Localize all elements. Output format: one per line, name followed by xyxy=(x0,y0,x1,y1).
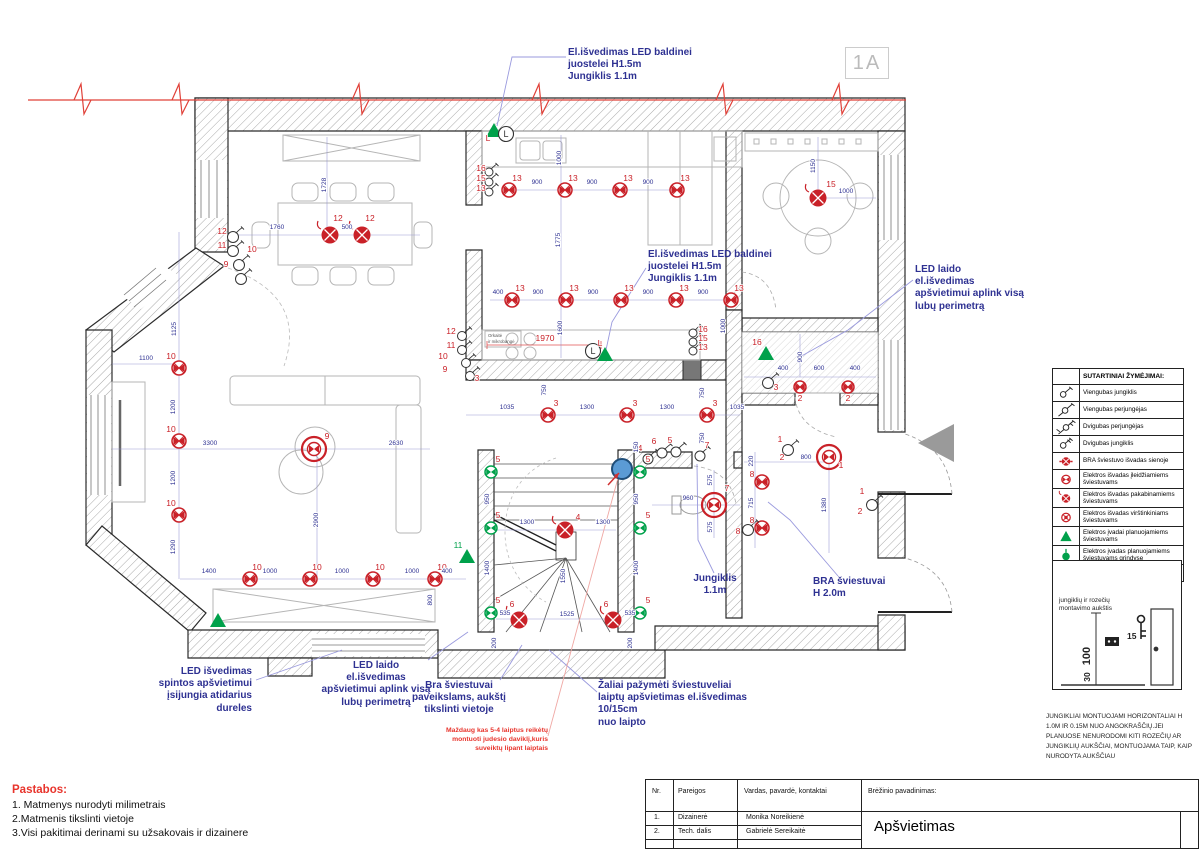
light-label: 13 xyxy=(698,342,708,352)
light-label: 12 xyxy=(365,213,375,223)
switch-symbol xyxy=(228,227,245,243)
recessed-light-symbol xyxy=(502,183,516,197)
notes-block: Pastabos: 1. Matmenys nurodyti milimetra… xyxy=(12,784,248,841)
light-label: 13 xyxy=(476,183,486,193)
pendant-light-symbol xyxy=(552,516,573,539)
dim: 1150 xyxy=(810,159,817,173)
pendant-light-symbol xyxy=(317,221,338,244)
sw1p-legend-icon xyxy=(1053,402,1080,418)
annotation-motion-note: Maždaug kas 5-4 laiptus reikėtų montuoti… xyxy=(418,726,548,754)
dim: 1100 xyxy=(139,355,153,362)
recessed-light-symbol xyxy=(620,408,634,422)
dim: 1000 xyxy=(556,150,563,165)
recessed-light-symbol xyxy=(670,183,684,197)
dim: 1300 xyxy=(660,404,675,411)
recessed-light-symbol xyxy=(541,408,555,422)
light-label: 5 xyxy=(496,454,501,464)
dim: 220 xyxy=(748,455,755,466)
light-label: 16 xyxy=(476,163,486,173)
svg-text:L: L xyxy=(503,129,508,139)
dim: 900 xyxy=(643,179,654,186)
stair-light-symbol xyxy=(485,466,497,478)
sw1-legend-icon xyxy=(1053,385,1080,401)
dim: 1760 xyxy=(270,224,285,231)
legend-item-label: Elektros išvadas pakabinamiems šviestuva… xyxy=(1080,489,1183,507)
dim: 900 xyxy=(587,179,598,186)
light-label: 2 xyxy=(858,506,863,516)
row-name: Monika Noreikienė xyxy=(746,814,804,821)
light-label: 10 xyxy=(375,562,385,572)
dim: 1000 xyxy=(405,568,420,575)
dim: 1400 xyxy=(484,560,491,575)
recessed-light-symbol xyxy=(505,293,519,307)
dim: 3300 xyxy=(203,440,218,447)
dim: 1125 xyxy=(171,322,178,336)
light-label: 13 xyxy=(512,173,522,183)
dim: 1200 xyxy=(170,399,177,414)
dim: 1300 xyxy=(580,404,595,411)
recessed-light-symbol xyxy=(172,508,186,522)
mount-diagram: 100 30 15 xyxy=(1053,561,1179,687)
legend-header-symbol-cell xyxy=(1053,369,1080,384)
note-item: 2.Matmenis tikslinti vietoje xyxy=(12,812,248,826)
annotation-led-closet: LED išvedimas spintos apšvietimui įsijun… xyxy=(100,666,252,715)
legend-item-label: Elektros išvadas įleidžiamiems šviestuva… xyxy=(1080,470,1183,488)
svg-text:Orkaitė: Orkaitė xyxy=(488,333,503,338)
legend-item: Viengubas jungiklis xyxy=(1053,385,1183,402)
switch-symbol xyxy=(783,440,800,456)
light-label: 5 xyxy=(668,435,673,445)
dim: 400 xyxy=(493,289,504,296)
dim: 2900 xyxy=(313,512,320,527)
dim: 150 xyxy=(633,441,640,452)
stair-light-symbol xyxy=(485,522,497,534)
svg-text:ir mikrobangė: ir mikrobangė xyxy=(488,339,515,344)
light-label: 10 xyxy=(247,244,257,254)
col-name: Vardas, pavardė, kontaktai xyxy=(744,788,827,795)
small-texts: Orkaitėir mikrobangė xyxy=(488,333,515,344)
key-icon xyxy=(1138,616,1147,640)
stair-light-symbol xyxy=(634,522,646,534)
legend-item: Elektros išvadas virštinkiniams šviestuv… xyxy=(1053,508,1183,527)
sw2p-legend-icon xyxy=(1053,419,1080,435)
light-label: 1 xyxy=(860,486,865,496)
dim: 1600 xyxy=(557,320,564,335)
legend-item: Dvigubas jungiklis xyxy=(1053,436,1183,453)
legend-item-label: Elektros išvadas virštinkiniams šviestuv… xyxy=(1080,508,1183,526)
light-label: 3 xyxy=(713,398,718,408)
light-label: 5 xyxy=(496,510,501,520)
drawing-title: Apšvietimas xyxy=(874,818,955,835)
door-icon xyxy=(1151,609,1173,685)
light-label: L xyxy=(598,338,603,348)
light-label: 11 xyxy=(218,240,227,250)
light-label: 4 xyxy=(576,512,581,522)
light-label: 3 xyxy=(774,382,779,392)
light-label: L xyxy=(486,133,491,143)
dim: 1550 xyxy=(560,568,567,583)
dim: 1290 xyxy=(170,539,177,554)
light-label: 9 xyxy=(443,364,448,374)
dim: 200 xyxy=(627,637,634,648)
dim: 2630 xyxy=(389,440,404,447)
row-nr: 2. xyxy=(654,828,660,835)
dim: 1775 xyxy=(555,232,562,247)
legend-item: BRA šviestuvo išvadas sienoje xyxy=(1053,453,1183,470)
light-label: 9 xyxy=(325,431,330,441)
light-label: 8 xyxy=(750,469,755,479)
annotation-led-strip-mid: El.išvedimas LED baldinei juostelei H1.5… xyxy=(648,249,818,286)
dim: 900 xyxy=(532,179,543,186)
stair-light-symbol xyxy=(634,466,646,478)
light-label: 10 xyxy=(252,562,262,572)
light-label: 9 xyxy=(224,259,229,269)
light-label: 10 xyxy=(166,351,176,361)
recessed-light-symbol xyxy=(669,293,683,307)
rec-legend-icon xyxy=(1053,470,1080,488)
mount-note: JUNGIKLIAI MONTUOJAMI HORIZONTALIAI H 1.… xyxy=(1046,712,1198,762)
light-label: 5 xyxy=(646,510,651,520)
dim: 900 xyxy=(643,289,654,296)
light-label: 5 xyxy=(646,595,651,605)
light-label: 12 xyxy=(217,226,227,236)
light-label: 15 xyxy=(826,179,836,189)
bra-legend-icon xyxy=(1053,453,1080,469)
pend-legend-icon xyxy=(1053,489,1080,507)
column xyxy=(683,360,701,380)
light-label: 3 xyxy=(633,398,638,408)
dim: 400 xyxy=(442,568,453,575)
mount-label: jungiklių ir rozečių montavimo aukštis xyxy=(1059,597,1112,614)
recessed-light-symbol xyxy=(794,381,806,393)
dim: 960 xyxy=(683,495,694,502)
legend-item-label: Elektros įvadai planuojamiems šviestuvam… xyxy=(1080,527,1183,545)
annotation-bra-paintings: Bra šviestuvai paveikslams, aukštį tiksl… xyxy=(398,680,520,717)
stair-light-symbol xyxy=(634,607,646,619)
legend-item-label: BRA šviestuvo išvadas sienoje xyxy=(1080,453,1183,469)
light-label: 6 xyxy=(604,599,609,609)
dim: 200 xyxy=(491,637,498,648)
dim: 800 xyxy=(427,594,434,605)
stair-light-symbol xyxy=(485,607,497,619)
dim: 1300 xyxy=(520,519,535,526)
dim: 750 xyxy=(699,387,706,398)
socket-icon xyxy=(1105,637,1119,646)
light-label: 13 xyxy=(569,283,579,293)
switch-symbol xyxy=(228,241,245,257)
row-nr: 1. xyxy=(654,814,660,821)
light-label: 5 xyxy=(646,454,651,464)
light-label: 10 xyxy=(166,424,176,434)
light-label: 11 xyxy=(447,340,456,350)
legend-item: Elektros išvadas įleidžiamiems šviestuva… xyxy=(1053,470,1183,489)
light-label: 1 xyxy=(839,460,844,470)
legend-item: Viengubas perjungėjas xyxy=(1053,402,1183,419)
light-label: 5 xyxy=(496,595,501,605)
legend-item: Dvigubas perjungėjas xyxy=(1053,419,1183,436)
legend: SUTARTINIAI ŽYMĖJIMAI: Viengubas jungikl… xyxy=(1052,368,1184,582)
dim: 400 xyxy=(778,365,789,372)
legend-item: Elektros išvadas pakabinamiems šviestuva… xyxy=(1053,489,1183,508)
dim: 715 xyxy=(748,497,755,508)
recessed-light-symbol xyxy=(614,293,628,307)
light-label: 3 xyxy=(475,373,480,383)
recessed-light-symbol xyxy=(842,381,854,393)
legend-header: SUTARTINIAI ŽYMĖJIMAI: xyxy=(1080,369,1183,384)
pendant-light-symbol xyxy=(349,221,370,244)
light-label: 10 xyxy=(438,351,448,361)
entrance-arrow-icon xyxy=(918,424,954,462)
dim: 1000 xyxy=(263,568,278,575)
dim: 1400 xyxy=(633,560,640,575)
light-label: 13 xyxy=(624,283,634,293)
dim: 1728 xyxy=(321,177,328,192)
annotation-led-strip-top: El.išvedimas LED baldinei juostelei H1.5… xyxy=(568,47,728,84)
light-label: 13 xyxy=(623,173,633,183)
svg-text:L: L xyxy=(590,346,595,356)
dim: 1380 xyxy=(821,497,828,512)
lamp-outlet-circle-symbol: L xyxy=(499,127,514,142)
light-label: 12 xyxy=(333,213,343,223)
dim: 600 xyxy=(814,365,825,372)
light-label: 2 xyxy=(780,452,785,462)
dim: 575 xyxy=(707,521,714,532)
recessed-light-symbol xyxy=(303,572,317,586)
legend-item-label: Dvigubas jungiklis xyxy=(1080,436,1183,452)
recessed-light-symbol xyxy=(172,434,186,448)
dim: 535 xyxy=(500,610,511,617)
light-label: 1 xyxy=(778,434,783,444)
dim: 750 xyxy=(541,384,548,395)
recessed-light-symbol xyxy=(428,572,442,586)
dim: 900 xyxy=(533,289,544,296)
legend-header-row: SUTARTINIAI ŽYMĖJIMAI: xyxy=(1053,369,1183,385)
power-inlet-triangle-icon xyxy=(459,549,475,563)
legend-item-label: Viengubas jungiklis xyxy=(1080,385,1183,401)
light-label: 10 xyxy=(312,562,322,572)
legend-item-label: Viengubas perjungėjas xyxy=(1080,402,1183,418)
light-label: 7 xyxy=(725,483,730,493)
drawing-sheet: L L xyxy=(0,0,1200,853)
light-label: 8 xyxy=(750,515,755,525)
dim: 1300 xyxy=(596,519,611,526)
dim: 1400 xyxy=(202,568,217,575)
note-item: 3.Visi pakitimai derinami su užsakovais … xyxy=(12,826,248,840)
dim: 950 xyxy=(484,493,491,504)
recessed-light-symbol xyxy=(559,293,573,307)
row-name: Gabrielė Sereikaitė xyxy=(746,828,806,835)
light-label: 13 xyxy=(568,173,578,183)
mount-dim-100: 100 xyxy=(1081,647,1093,665)
col-role: Pareigos xyxy=(678,788,706,795)
mount-dim-15: 15 xyxy=(1127,631,1137,641)
light-label: 16 xyxy=(752,337,762,347)
surf-legend-icon xyxy=(1053,508,1080,526)
recessed-light-symbol xyxy=(755,475,769,489)
annotation-stair-lights: Žaliai pažymėti šviestuveliai laiptų apš… xyxy=(598,680,798,729)
dim: 1000 xyxy=(839,188,854,195)
dim: 1035 xyxy=(730,404,745,411)
recessed-light-symbol xyxy=(755,521,769,535)
dim: 900 xyxy=(698,289,709,296)
dim: 535 xyxy=(625,610,636,617)
mount-dim-30: 30 xyxy=(1082,672,1092,682)
dim: 900 xyxy=(797,351,804,362)
col-nr: Nr. xyxy=(652,788,661,795)
dim: 800 xyxy=(801,454,812,461)
dim: 1000 xyxy=(335,568,350,575)
light-label: 13 xyxy=(680,173,690,183)
switch-symbol xyxy=(234,255,251,271)
row-role: Dizainerė xyxy=(678,814,708,821)
light-label: 3 xyxy=(554,398,559,408)
dim: 1035 xyxy=(500,404,515,411)
recessed-light-symbol xyxy=(724,293,738,307)
recessed-light-symbol xyxy=(613,183,627,197)
light-label: 8 xyxy=(736,526,741,536)
dim: 750 xyxy=(699,432,706,443)
light-label: 11 xyxy=(454,540,463,550)
dim: 400 xyxy=(850,365,861,372)
recessed-light-symbol xyxy=(243,572,257,586)
light-label: 2 xyxy=(798,393,803,403)
title-block: Nr. Pareigos Vardas, pavardė, kontaktai … xyxy=(645,779,1199,849)
dim: 500 xyxy=(342,224,353,231)
dim: 900 xyxy=(588,289,599,296)
dim: 1200 xyxy=(170,470,177,485)
mount-height-box: jungiklių ir rozečių montavimo aukštis 1… xyxy=(1052,560,1182,690)
light-label: 10 xyxy=(166,498,176,508)
annotation-led-perimeter-right: LED laido el.išvedimas apšvietimui aplin… xyxy=(915,264,1030,313)
sheet-marker: 1A xyxy=(845,47,889,79)
light-label: 15 xyxy=(476,173,486,183)
note-item: 1. Matmenys nurodyti milimetrais xyxy=(12,798,248,812)
recessed-light-symbol xyxy=(172,361,186,375)
light-label: 12 xyxy=(446,326,456,336)
dim: 950 xyxy=(633,493,640,504)
light-label: 1970 xyxy=(536,333,555,343)
pendant-light-symbol xyxy=(805,184,826,207)
legend-item: Elektros įvadai planuojamiems šviestuvam… xyxy=(1053,527,1183,546)
notes-title: Pastabos: xyxy=(12,784,248,796)
dim: 1525 xyxy=(560,611,575,618)
light-label: 6 xyxy=(510,599,515,609)
light-label: 6 xyxy=(652,436,657,446)
recessed-light-symbol xyxy=(558,183,572,197)
sw2-legend-icon xyxy=(1053,436,1080,452)
annotation-bra-height: BRA šviestuvai H 2.0m xyxy=(813,576,913,600)
row-role: Tech. dalis xyxy=(678,828,711,835)
recessed-light-symbol xyxy=(366,572,380,586)
dim: 1000 xyxy=(720,318,727,333)
light-label: 13 xyxy=(515,283,525,293)
recessed-light-symbol xyxy=(700,408,714,422)
legend-item-label: Dvigubas perjungėjas xyxy=(1080,419,1183,435)
dim: 575 xyxy=(707,474,714,485)
light-label: 2 xyxy=(846,393,851,403)
tri-legend-icon xyxy=(1053,527,1080,545)
annotation-switch-height: Jungiklis 1.1m xyxy=(683,573,747,597)
col-drawing: Brėžinio pavadinimas: xyxy=(868,788,936,795)
